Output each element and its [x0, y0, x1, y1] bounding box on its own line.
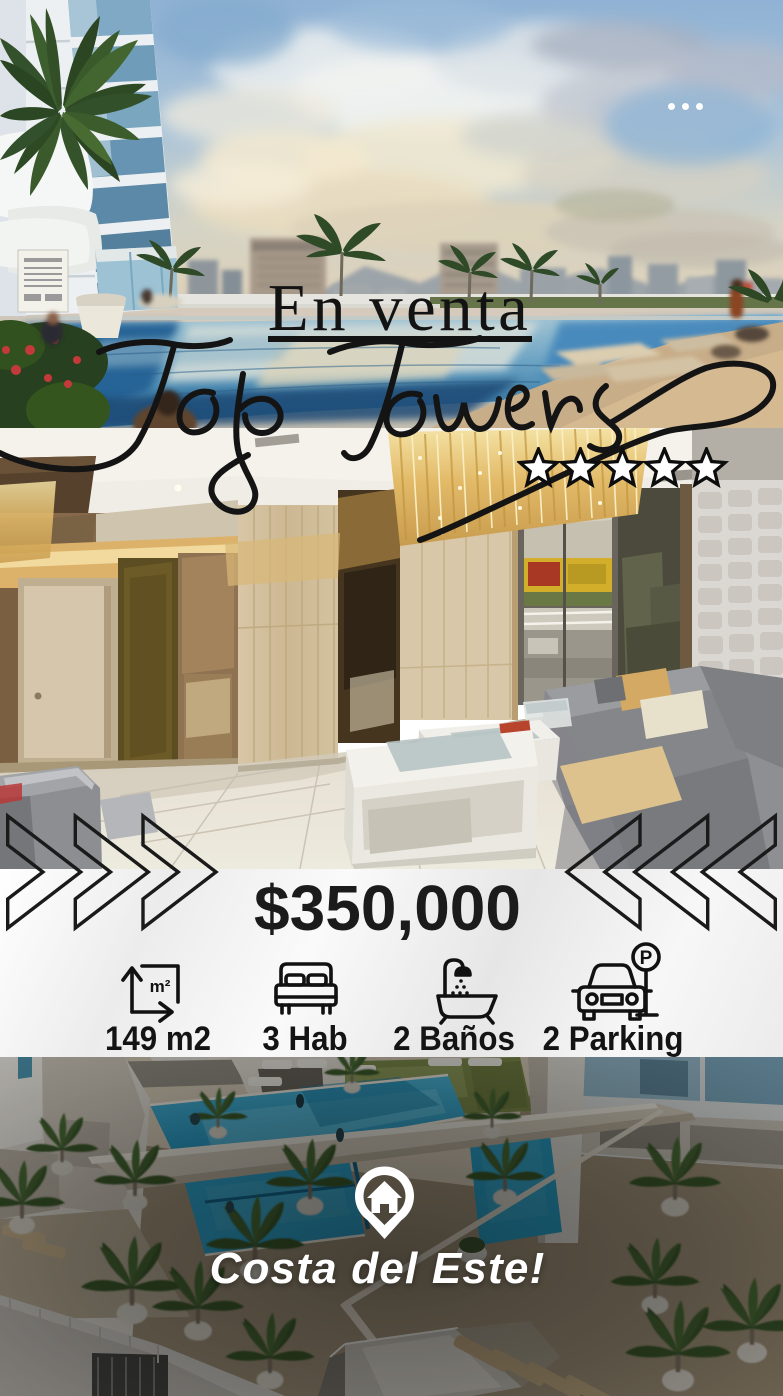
svg-text:m²: m² — [150, 977, 171, 996]
svg-text:P: P — [640, 948, 653, 969]
